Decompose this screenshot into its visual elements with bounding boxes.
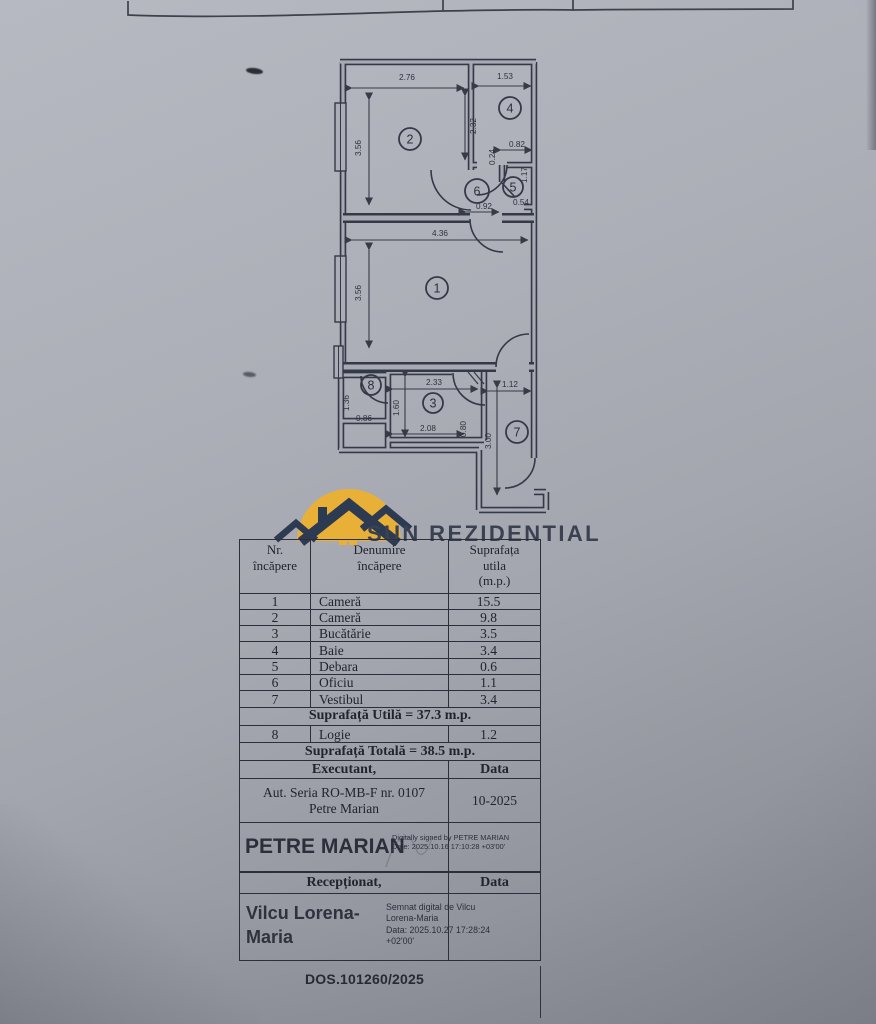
- dimension-label: 3.00: [484, 433, 493, 449]
- authorization-date: 10-2025: [449, 779, 540, 821]
- dimension-label: 0.54: [513, 198, 529, 207]
- room-name: Logie: [311, 726, 449, 742]
- scan-corner-shadow: [0, 804, 260, 1024]
- ink-blot-artifact: [243, 371, 256, 377]
- dimension-lines: [352, 86, 532, 495]
- room-name: Baie: [311, 642, 449, 657]
- receptionat-row: Recepționat, Data: [240, 872, 540, 894]
- executant-row: Executant, Data: [240, 761, 540, 779]
- room-area: 3.5: [449, 626, 540, 641]
- digital-signature-note: Semnat digital de Vilcu Lorena-Maria Dat…: [386, 902, 521, 948]
- floor-plan: 2.761.533.562.320.820.241.170.540.924.36…: [325, 50, 555, 520]
- room-area: 1.1: [449, 675, 540, 690]
- room-nr: 7: [240, 691, 311, 706]
- useful-area-row: Suprafață Utilă = 37.3 m.p.: [240, 708, 540, 727]
- authorization-row: Aut. Seria RO-MB-F nr. 0107 Petre Marian…: [240, 779, 540, 822]
- dimension-label: 3.56: [354, 140, 363, 156]
- room-number: 5: [510, 181, 517, 195]
- dimension-label: 2.76: [399, 73, 415, 82]
- room-nr: 1: [240, 594, 311, 609]
- room-area: 15.5: [449, 594, 540, 609]
- dimension-label: 2.08: [420, 424, 436, 433]
- room-area: 1.2: [449, 726, 540, 742]
- room-nr: 4: [240, 642, 311, 657]
- paper-edge-shadow: [866, 0, 876, 150]
- data-label: Data: [449, 873, 540, 893]
- room-area: 0.6: [449, 659, 540, 674]
- dimension-label: 0.82: [509, 140, 525, 149]
- authorization-text: Aut. Seria RO-MB-F nr. 0107 Petre Marian: [240, 779, 449, 821]
- dimension-label: 0.80: [459, 421, 468, 437]
- room-name: Cameră: [311, 594, 449, 609]
- header-denumire: Denumire încăpere: [311, 540, 449, 593]
- dimension-label: 1.12: [502, 380, 518, 389]
- table-row: 7Vestibul3.4: [240, 691, 540, 707]
- room-number: 8: [368, 379, 375, 393]
- room-number: 3: [430, 397, 437, 411]
- ink-blot-artifact: [246, 67, 264, 75]
- receiver-signature-row: Vilcu Lorena- Maria Semnat digital de Vi…: [240, 894, 540, 961]
- table-row: 5Debara0.6: [240, 659, 540, 675]
- table-row: 2Cameră9.8: [240, 610, 540, 626]
- dimension-label: 1.60: [392, 400, 401, 416]
- table-header-row: Nr. încăpere Denumire încăpere Suprafața…: [240, 540, 540, 594]
- room-name: Oficiu: [311, 675, 449, 690]
- room-name: Vestibul: [311, 691, 449, 706]
- top-page-edge-lines: [0, 0, 876, 22]
- dimension-label: 0.86: [356, 414, 372, 423]
- room-nr: 5: [240, 659, 311, 674]
- agency-logo: SUN REZIDENTIAL: [270, 482, 600, 546]
- room-nr: 3: [240, 626, 311, 641]
- data-label: Data: [449, 761, 540, 778]
- dimension-label: 3.56: [354, 285, 363, 301]
- room-number: 7: [514, 426, 521, 440]
- room-rows-container: 1Cameră15.52Cameră9.83Bucătărie3.54Baie3…: [240, 594, 540, 708]
- table-row: 4Baie3.4: [240, 642, 540, 658]
- header-nr: Nr. încăpere: [240, 540, 311, 593]
- dossier-strip: DOS.101260/2025: [239, 966, 541, 1018]
- table-row: 6Oficiu1.1: [240, 675, 540, 691]
- room-number: 6: [474, 185, 481, 199]
- dimension-label: 2.33: [426, 378, 442, 387]
- room-area: 9.8: [449, 610, 540, 625]
- room-name: Debara: [311, 659, 449, 674]
- table-row: 3Bucătărie3.5: [240, 626, 540, 642]
- digital-signature-note: Digitally signed by PETRE MARIAN Date: 2…: [392, 833, 544, 851]
- room-area: 3.4: [449, 642, 540, 657]
- room-nr: 8: [240, 726, 311, 742]
- executant-signature-row: PETRE MARIAN Digitally signed by PETRE M…: [240, 823, 540, 873]
- scanned-floorplan-document: { "logo": { "title": "SUN REZIDENTIAL", …: [0, 0, 876, 1024]
- room-area-table: Nr. încăpere Denumire încăpere Suprafața…: [239, 539, 541, 961]
- dossier-number: DOS.101260/2025: [305, 971, 540, 987]
- room-area: 3.4: [449, 691, 540, 706]
- room-nr: 2: [240, 610, 311, 625]
- room-number: 4: [507, 102, 514, 116]
- room-nr: 6: [240, 675, 311, 690]
- header-suprafata: Suprafața utila (m.p.): [449, 540, 540, 593]
- room-name: Bucătărie: [311, 626, 449, 641]
- receptionat-label: Recepționat,: [240, 873, 449, 893]
- dimension-label: 0.24: [488, 149, 497, 165]
- table-row-logie: 8 Logie 1.2: [240, 726, 540, 743]
- dimension-label: 1.36: [342, 395, 351, 411]
- room-number: 1: [434, 282, 441, 296]
- dimension-label: 4.36: [432, 229, 448, 238]
- dimension-label: 1.53: [497, 72, 513, 81]
- total-area-row: Suprafață Totală = 38.5 m.p.: [240, 743, 540, 762]
- executant-label: Executant,: [240, 761, 449, 778]
- room-number: 2: [407, 133, 414, 147]
- room-name: Cameră: [311, 610, 449, 625]
- table-row: 1Cameră15.5: [240, 594, 540, 610]
- dimension-label: 2.32: [469, 118, 478, 134]
